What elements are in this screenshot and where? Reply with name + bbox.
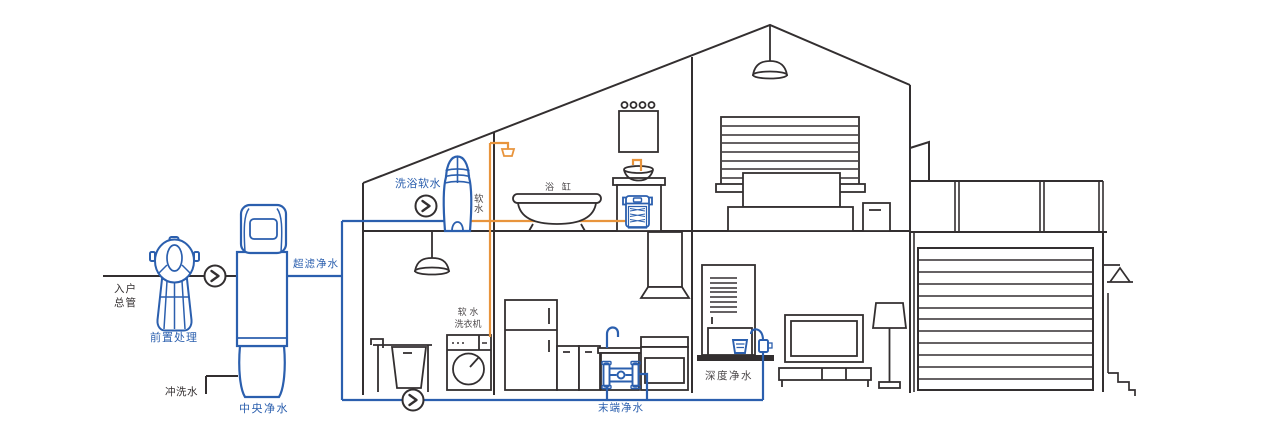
flush-pipe bbox=[206, 376, 238, 394]
kitchen-faucet-icon bbox=[607, 327, 618, 348]
ro-gauge bbox=[618, 372, 625, 379]
tv-screen bbox=[791, 321, 857, 356]
mirror-light-icon bbox=[640, 102, 646, 108]
garage-door-slats bbox=[918, 260, 1093, 379]
range-hood-chimney bbox=[648, 232, 682, 287]
bed bbox=[728, 207, 853, 231]
kitchen-furniture bbox=[505, 232, 689, 390]
bathtub-figure bbox=[513, 194, 601, 231]
bathtub-base bbox=[529, 224, 585, 231]
purifier-skirt bbox=[239, 346, 285, 397]
label-central-purification: 中央净水 bbox=[239, 400, 289, 416]
shower-head-icon bbox=[502, 149, 514, 156]
bath-undersink-device bbox=[623, 196, 652, 228]
purifier-window bbox=[250, 219, 277, 239]
label-deep-purification: 深度净水 bbox=[705, 368, 753, 383]
stove-back-panel bbox=[641, 337, 688, 347]
device-body bbox=[626, 196, 649, 227]
pendant-lamp-base bbox=[753, 72, 787, 79]
floor-lamp-shade bbox=[873, 303, 906, 328]
purifier-body bbox=[237, 252, 287, 346]
steps bbox=[1108, 373, 1135, 396]
railing-posts bbox=[955, 181, 1103, 232]
floor-lamp-base bbox=[879, 382, 900, 388]
water-cup-icon bbox=[733, 340, 747, 353]
whole-house-water-system-diagram: 入户 总管 前置处理 中央净水 冲洗水 超滤净水 洗浴软水 软 水 浴 缸 软 … bbox=[0, 0, 1280, 434]
label-inlet-main: 入户 总管 bbox=[114, 283, 137, 310]
laundry-furniture bbox=[371, 335, 491, 392]
flow-arrow-icon bbox=[205, 266, 226, 287]
ro-end-plate bbox=[633, 364, 639, 387]
ro-end-plate bbox=[604, 364, 610, 387]
flow-arrow-icon bbox=[416, 196, 437, 217]
ceiling-lamp-base bbox=[415, 268, 449, 275]
label-flush-water: 冲洗水 bbox=[165, 384, 198, 399]
central-purifier-device bbox=[237, 205, 287, 397]
sink-bowl-rim bbox=[624, 166, 653, 173]
vanity-counter bbox=[613, 178, 665, 185]
oven-door bbox=[645, 358, 684, 383]
label-terminal-purification: 末端净水 bbox=[598, 400, 644, 415]
parapet bbox=[910, 142, 929, 181]
bedside-table bbox=[863, 203, 890, 231]
bathtub-rim bbox=[513, 194, 601, 203]
bedroom-furniture bbox=[716, 25, 890, 231]
label-soft-water-washer: 软 水 洗衣机 bbox=[445, 307, 491, 331]
label-bathtub: 浴 缸 bbox=[545, 180, 573, 193]
mirror-light-icon bbox=[631, 102, 637, 108]
garage-structure bbox=[910, 142, 1135, 396]
tv-stand bbox=[779, 368, 871, 380]
mirror-light-icon bbox=[649, 102, 655, 108]
pre-filter-head bbox=[155, 240, 194, 283]
mirror-light-icon bbox=[622, 102, 628, 108]
wall-lamp-icon bbox=[1103, 265, 1133, 282]
dispenser-fixture bbox=[759, 340, 768, 352]
label-soft-water: 软 水 bbox=[474, 195, 484, 215]
label-ultrafiltration: 超滤净水 bbox=[293, 256, 339, 271]
laundry-tap-icon bbox=[371, 339, 383, 348]
label-bath-soft-water: 洗浴软水 bbox=[395, 175, 441, 191]
label-pre-treatment: 前置处理 bbox=[150, 329, 198, 345]
pre-filter-device bbox=[150, 237, 199, 331]
diagram-canvas bbox=[0, 0, 1280, 434]
dispenser-nub bbox=[768, 343, 772, 348]
bed-headboard bbox=[743, 173, 840, 207]
flow-arrow-icon bbox=[403, 390, 424, 411]
water-softener-device bbox=[444, 157, 472, 232]
range-hood bbox=[641, 287, 689, 298]
mirror bbox=[619, 111, 658, 152]
